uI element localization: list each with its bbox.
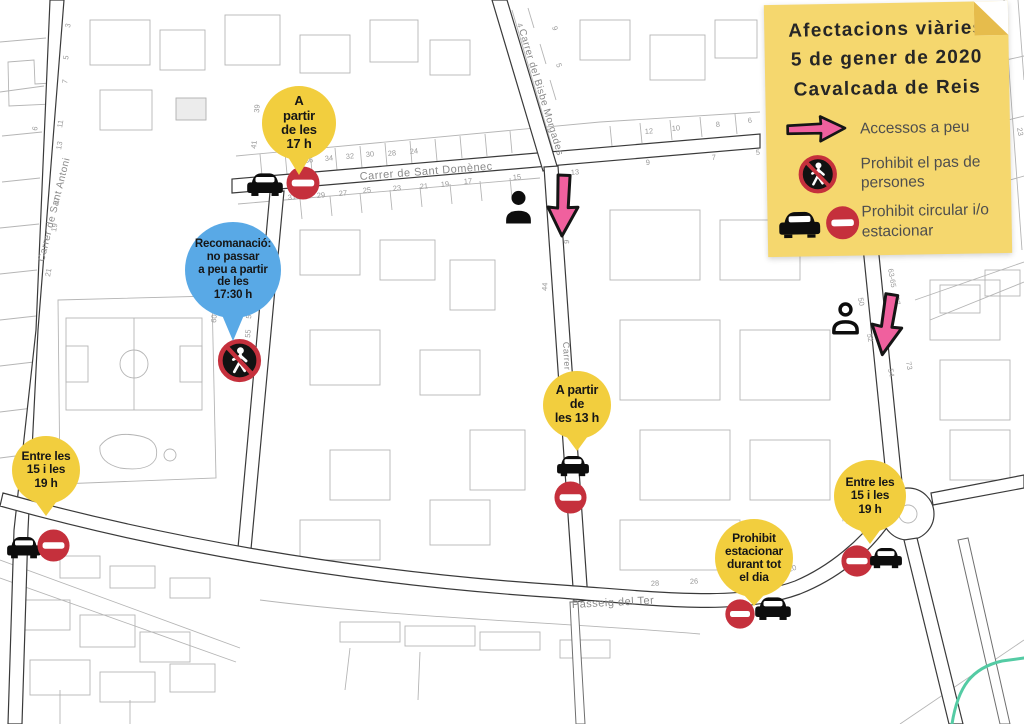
- car-icon: [869, 545, 903, 569]
- folded-corner: [974, 1, 1009, 36]
- street-label-carrer-center: Carrer: [561, 342, 572, 371]
- pin-tail: [222, 315, 244, 341]
- house-number: 25: [362, 185, 371, 195]
- house-number: 8: [715, 120, 720, 129]
- car-icon: [777, 208, 822, 239]
- house-number: 44: [540, 282, 549, 291]
- house-number: 3: [63, 23, 73, 29]
- house-number: 6: [747, 116, 752, 125]
- house-number: 9: [645, 158, 650, 167]
- legend-item-no-circulation: Prohibit circular i/o estacionar: [775, 200, 1004, 243]
- house-number: 12: [644, 126, 653, 136]
- pink-arrow-icon: [784, 113, 851, 146]
- house-number: 21: [43, 268, 53, 278]
- pin-tail: [743, 594, 765, 606]
- house-number: 41: [249, 140, 259, 149]
- house-number: 54: [886, 368, 896, 378]
- house-number: 9: [550, 25, 560, 32]
- pedestrian-access-icon: [830, 300, 861, 336]
- car-icon: [556, 453, 590, 477]
- house-number: 5: [755, 148, 760, 157]
- house-number: 24: [409, 146, 418, 156]
- house-number: 7: [711, 153, 716, 162]
- house-number: 17: [463, 176, 472, 186]
- no-entry-sign-icon: [36, 528, 71, 563]
- house-number: 23: [1015, 127, 1024, 137]
- legend-panel: Afectacions viàries 5 de gener de 2020 C…: [764, 1, 1012, 257]
- pin-label: Recomanació: no passar a peu a partir de…: [185, 222, 281, 318]
- pin-label: A partir de les 13 h: [543, 371, 611, 439]
- house-number: 32: [345, 151, 354, 161]
- pedestrian-access-icon: [502, 188, 535, 226]
- house-number: 26: [690, 577, 699, 586]
- house-number: 63-65: [886, 268, 898, 288]
- house-number: 39: [252, 104, 262, 113]
- house-number: 28: [387, 148, 396, 158]
- pin-label: Entre les 15 i les 19 h: [834, 460, 906, 532]
- house-number: 23: [392, 183, 401, 193]
- legend-item-accessos: Accessos a peu: [774, 110, 1003, 146]
- pin-label: A partir de les 17 h: [262, 86, 336, 160]
- pin-tail: [288, 157, 310, 175]
- house-number: 10: [671, 123, 680, 133]
- house-number: 17: [51, 197, 61, 207]
- no-entry-sign-icon: [824, 204, 861, 241]
- legend-item-label: Prohibit circular i/o estacionar: [861, 200, 1004, 241]
- legend-item-label: Prohibit el pas de persones: [860, 152, 1003, 193]
- house-number: 6: [30, 126, 40, 132]
- house-number: 11: [55, 119, 65, 128]
- house-number: 30: [365, 149, 374, 159]
- house-number: 5: [554, 62, 564, 69]
- street-sant-antoni: [8, 0, 64, 724]
- no-entry-sign-icon: [553, 480, 588, 515]
- house-number: 73: [904, 361, 914, 371]
- house-number: 28: [651, 579, 660, 588]
- house-number: 19: [440, 179, 449, 189]
- pin-entre-15-19-west: Entre les 15 i les 19 h: [12, 436, 80, 516]
- traffic-affectation-map: Carrer de Sant Domènec Carrer del Bisbe …: [0, 0, 1024, 724]
- pin-tail: [859, 529, 881, 544]
- legend-title-line3: Cavalcada de Reis: [773, 72, 1001, 105]
- house-number: 21: [419, 181, 428, 191]
- legend-item-label: Accessos a peu: [860, 117, 970, 138]
- pin-recomanacio-1730: Recomanació: no passar a peu a partir de…: [185, 222, 281, 341]
- pin-tail: [566, 436, 588, 451]
- pin-label: Entre les 15 i les 19 h: [12, 436, 80, 504]
- house-number: 19: [49, 223, 59, 233]
- no-pedestrian-sign-icon: [797, 154, 838, 195]
- house-number: 4: [515, 22, 525, 29]
- pin-label: Prohibit estacionar durant tot el dia: [715, 519, 793, 597]
- house-number: 5: [61, 55, 71, 61]
- pin-a-partir-17h: A partir de les 17 h: [262, 86, 336, 175]
- pin-prohibit-estacionar: Prohibit estacionar durant tot el dia: [715, 519, 793, 606]
- legend-title-line1: Afectacions viàries: [772, 13, 1000, 46]
- legend-title-line2: 5 de gener de 2020: [773, 42, 1001, 75]
- pin-a-partir-13h: A partir de les 13 h: [543, 371, 611, 451]
- house-number: 27: [338, 188, 347, 198]
- house-number: 13: [54, 141, 64, 151]
- pin-entre-15-19-east: Entre les 15 i les 19 h: [834, 460, 906, 544]
- legend-item-no-pedestrians: Prohibit el pas de persones: [774, 151, 1003, 195]
- house-number: 15: [512, 172, 521, 182]
- house-number: 7: [60, 79, 70, 85]
- pin-tail: [35, 501, 57, 516]
- no-pedestrian-sign-icon: [217, 338, 262, 383]
- pink-arrow-down-icon: [544, 169, 582, 242]
